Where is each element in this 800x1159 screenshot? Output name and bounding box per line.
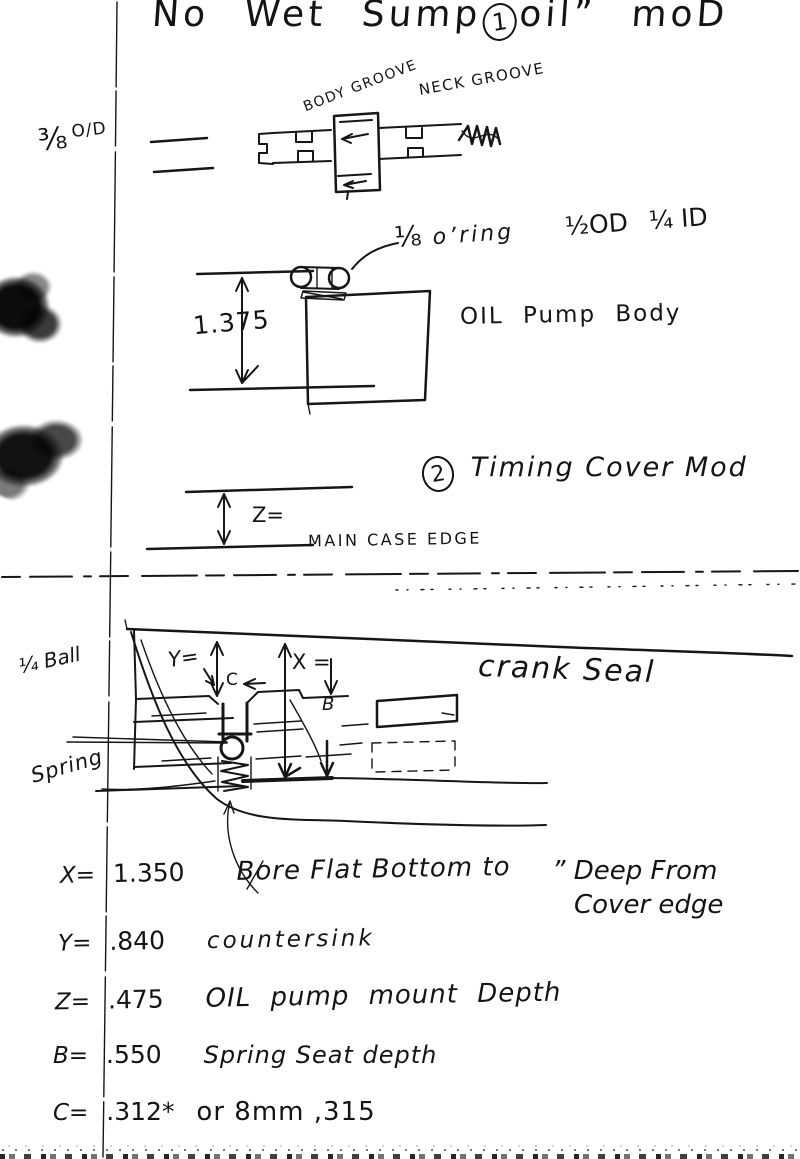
note-b-desc: Spring Seat depth [204, 1041, 438, 1069]
deep-from-line1: ” Deep From [552, 854, 723, 888]
note-x-value: 1.350 [113, 858, 185, 888]
note-x-deep-from: ” Deep From Cover edge [552, 854, 723, 922]
od-text: O/D [71, 118, 108, 142]
oring-od-spec: ½OD [564, 208, 629, 241]
y-dim-label: Y= [166, 644, 199, 672]
od-fraction: ⅜ [36, 121, 69, 159]
deep-from-line2: Cover edge [574, 888, 723, 922]
margin-line [103, 2, 117, 1157]
x-dim-label: X = [292, 650, 331, 674]
note-x-label: X= [60, 862, 95, 889]
b-dim-label: B [322, 694, 334, 715]
note-b-label: B= [53, 1043, 88, 1069]
shaft-od-label: ⅜ O/D [36, 116, 109, 158]
scanned-note-page: No Wet Sump1oil” moD BODY GROOVE NECK GR… [0, 0, 800, 1159]
scan-smudge-top [0, 262, 78, 362]
note-y-label: Y= [58, 930, 92, 957]
note-y-desc: countersink [207, 925, 375, 954]
note-b: B= .550 Spring Seat depth [53, 1040, 437, 1069]
note-z-desc: OIL pump mount Depth [205, 978, 561, 1014]
crank-seal-label: crank Seal [477, 649, 655, 690]
note-y: Y= .840 countersink [58, 922, 375, 957]
equals-marks [151, 138, 213, 172]
note-c-desc: or 8mm ,315 [196, 1097, 375, 1127]
note-c-value: .312* [106, 1097, 174, 1126]
note-x-desc: Bore Flat Bottom to [236, 852, 510, 887]
note-b-value: .550 [106, 1040, 162, 1069]
oring-word: o’ring [432, 220, 515, 251]
page-title-suffix: oil” moD [518, 0, 730, 35]
note-c: C= .312* or 8mm ,315 [53, 1097, 376, 1127]
note-c-label: C= [53, 1100, 88, 1126]
page-title: No Wet Sump1oil” moD [150, 0, 729, 41]
pump-body-label: OIL Pump Body [460, 300, 682, 330]
scan-noise-band [0, 1146, 800, 1159]
fold-divider-line [2, 571, 798, 590]
note-z-label: Z= [55, 989, 90, 1016]
timing-heading: 2 Timing Cover Mod [420, 452, 748, 492]
scan-smudge-bottom [0, 398, 90, 503]
note-y-value: .840 [109, 926, 165, 956]
pump-shaft-drawing [259, 113, 500, 199]
main-case-edge-label: MAIN CASE EDGE [308, 528, 482, 550]
note-z-value: .475 [108, 985, 164, 1015]
page-title-prefix: No Wet Sump [151, 0, 483, 35]
c-dim-label: C [226, 670, 238, 690]
z-dim-label: Z= [252, 503, 284, 527]
circled-number-1: 1 [481, 0, 519, 43]
timing-heading-text: Timing Cover Mod [471, 452, 748, 483]
circled-number-2: 2 [419, 453, 457, 494]
oring-size: ⅛ [393, 219, 422, 254]
oring-id-spec: ¼ ID [648, 202, 709, 235]
